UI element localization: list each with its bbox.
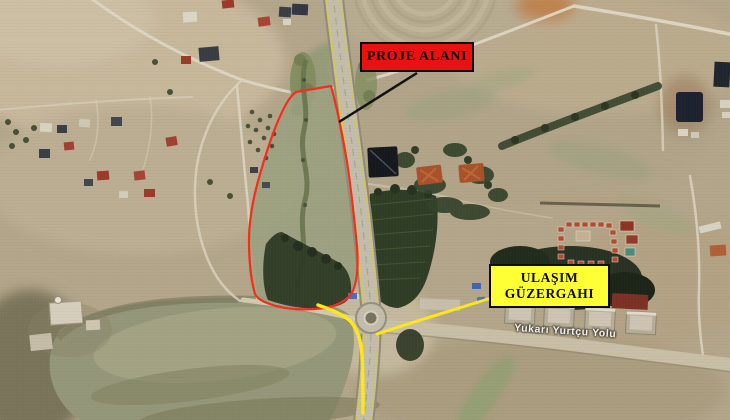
project-area-callout-text: PROJE ALANI — [367, 48, 467, 65]
project-area-callout: PROJE ALANI — [360, 42, 474, 72]
transport-route-callout-line2: GÜZERGAHI — [505, 286, 594, 302]
roundabout — [356, 303, 386, 333]
transport-route-callout: ULAŞIM GÜZERGAHI — [489, 264, 610, 308]
transport-route-callout-line1: ULAŞIM — [521, 270, 579, 286]
satellite-map-figure: Yukarı Yurtçu Yolu PROJE ALANI ULAŞIM GÜ… — [0, 0, 730, 420]
